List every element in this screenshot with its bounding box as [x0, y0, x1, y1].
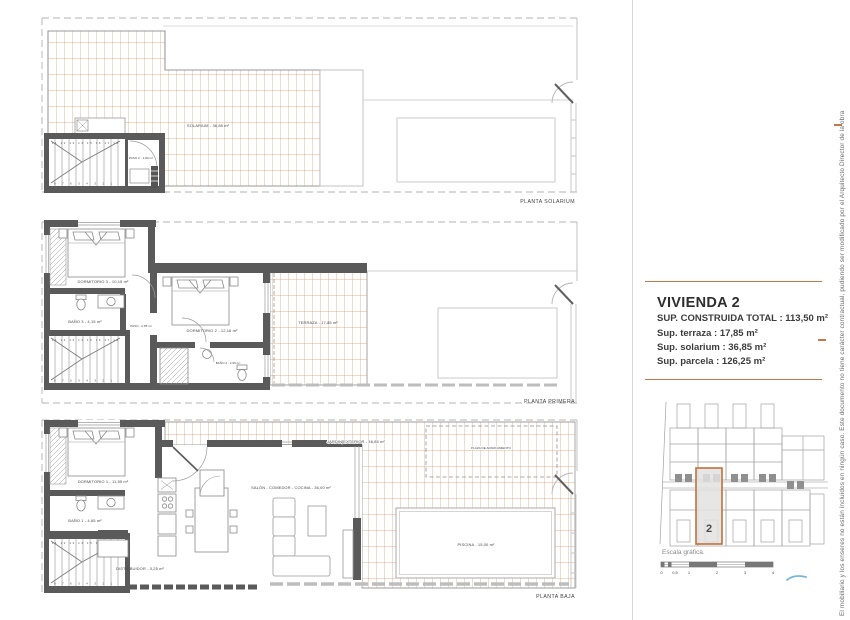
separator-top — [645, 281, 822, 282]
understair-closet — [98, 530, 128, 557]
surface-parcela: Sup. parcela : 126,25 m² — [657, 356, 765, 367]
floor-plan-primera: DORMITORIO 3 - 10,15 m² BAÑO 3 - 4,15 m²… — [40, 215, 625, 410]
room-label-bano2: BAÑO 2 - 2,95 m² — [216, 360, 241, 365]
bathroom2-fixtures — [160, 348, 247, 384]
room-label-bano3: BAÑO 3 - 4,15 m² — [68, 319, 102, 324]
label-parking: PLAZA DE APARCAMIENTO — [471, 446, 512, 450]
floor-plan-baja: PLAZA DE APARCAMIENTO PISCINA - 15,00 m² — [40, 418, 625, 620]
room-label-jardin: JARDIN EXTERIOR - 46,85 m² — [327, 439, 386, 444]
room-label-terraza: TERRAZA - 17,85 m² — [298, 320, 338, 325]
scale-tick-0: 0 — [660, 570, 663, 575]
scale-bar: 0 0,5 1 2 3 4 — [660, 561, 784, 577]
plan-title-baja: PLANTA BAJA — [536, 594, 575, 600]
room-label-solarium: SOLARIUM - 36,85 m² — [187, 123, 230, 128]
plan-title-primera: PLANTA PRIMERA — [524, 399, 575, 405]
scale-tick-4: 4 — [772, 570, 775, 575]
scale-tick-2: 2 — [716, 570, 719, 575]
room-label-dorm1: DORMITORIO 1 - 11,55 m² — [78, 479, 129, 484]
room-label-piscina: PISCINA - 15,00 m² — [458, 542, 495, 547]
site-entry-cores — [675, 474, 804, 489]
scale-tick-05: 0,5 — [672, 570, 678, 575]
plot-reference — [363, 82, 576, 192]
room-label-dorm3: DORMITORIO 3 - 10,15 m² — [78, 279, 129, 284]
surface-total: SUP. CONSTRUIDA TOTAL : 113,50 m² — [657, 313, 828, 324]
room-label-salon: SALÓN - COMEDOR - COCINA - 36,00 m² — [251, 485, 331, 490]
terrace-void — [320, 70, 363, 186]
surface-solarium: Sup. solarium : 36,85 m² — [657, 342, 766, 353]
disclaimer-text: El mobiliario y los enseres no están inc… — [839, 111, 846, 616]
kitchen-counters — [158, 478, 176, 556]
site-units-bottom — [670, 490, 824, 546]
scale-tick-3: 3 — [744, 570, 747, 575]
blue-swoosh-mark — [786, 572, 808, 584]
room-label-distribuidor: DISTRIBUIDOR - 3,25 m² — [116, 566, 165, 571]
scale-tick-1: 1 — [688, 570, 691, 575]
paso2-area — [128, 133, 165, 193]
unit-number: 2 — [706, 523, 712, 535]
scale-label: Escala gráfica. — [662, 549, 705, 556]
panel-divider — [632, 0, 633, 620]
site-plan: 2 — [656, 398, 836, 548]
floor-plan-solarium: 11 12 13 14 15 16 17 18 8 7 6 5 4 3 2 1 — [40, 10, 625, 210]
surface-terraza: Sup. terraza : 17,85 m² — [657, 328, 758, 339]
plan-sheet: 11 12 13 14 15 16 17 18 8 7 6 5 4 3 2 1 — [0, 0, 850, 620]
room-label-paso: PASO - 2,85 m² — [130, 324, 152, 328]
plan-title-solarium: PLANTA SOLARIUM — [520, 199, 575, 205]
room-label-dorm2: DORMITORIO 2 - 12,16 m² — [187, 328, 238, 333]
unit-title: VIVIENDA 2 — [657, 295, 740, 311]
room-label-bano1: BAÑO 1 - 4,65 m² — [68, 518, 102, 523]
margin-mark — [818, 339, 826, 341]
site-units-top — [670, 404, 824, 480]
separator-bottom — [645, 379, 822, 380]
room-label-paso2: PASO 2 - 1,80 m² — [129, 156, 153, 160]
terraza-tiled-floor — [270, 271, 367, 385]
